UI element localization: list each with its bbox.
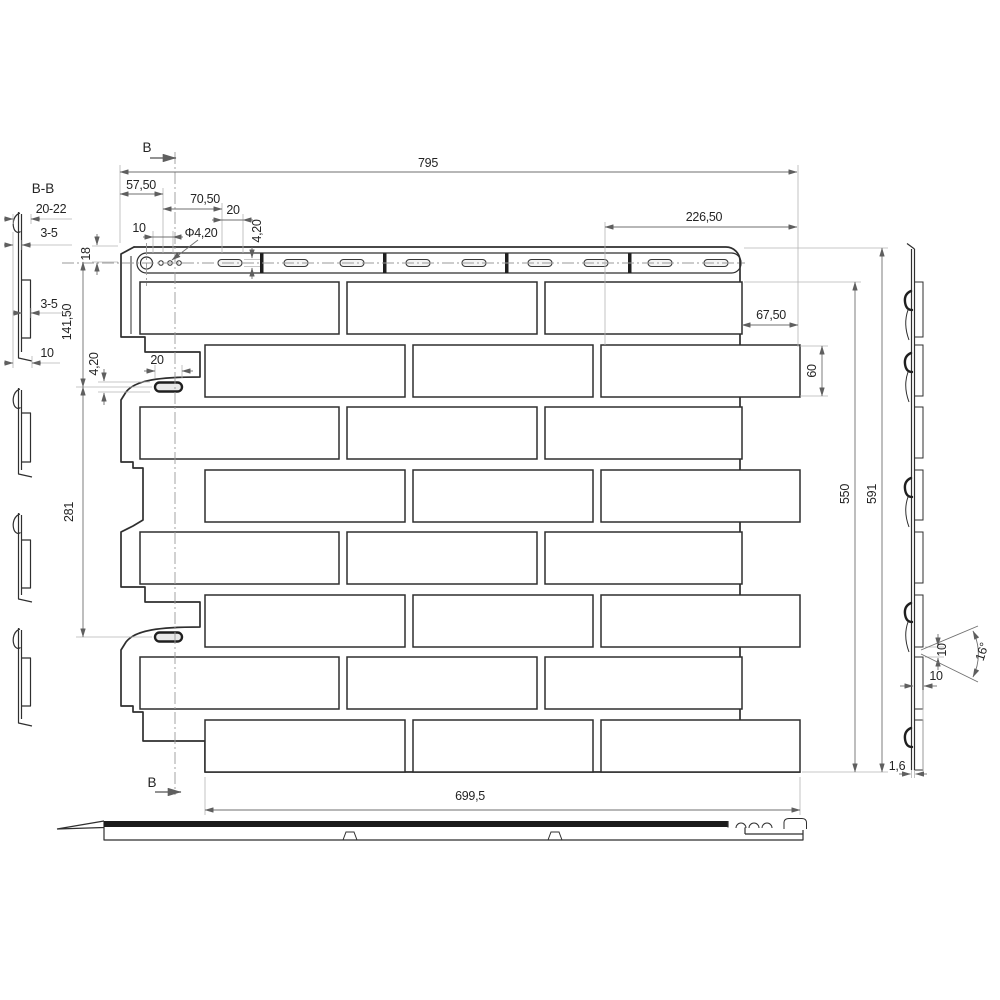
brick — [413, 595, 593, 647]
brick — [140, 407, 339, 459]
brick — [601, 720, 800, 772]
brick — [413, 470, 593, 522]
brick — [545, 657, 742, 709]
dim-right-overhang: 67,50 — [756, 308, 786, 322]
dim-bottom-width: 699,5 — [455, 789, 485, 803]
left-oval-slot — [155, 383, 182, 392]
brick — [205, 720, 405, 772]
dim-total-height: 591 — [865, 484, 879, 504]
brick — [205, 470, 405, 522]
section-profile — [13, 628, 32, 726]
dim-slot-gap-top: 20 — [226, 203, 240, 217]
dim-left-slot-height: 4,20 — [87, 352, 101, 375]
brick — [545, 282, 742, 334]
section-view-bb: B-B 20-22 3-5 — [4, 181, 72, 726]
brick — [140, 532, 339, 584]
dim-section-base: 10 — [40, 346, 54, 360]
technical-drawing-canvas: 795 57,50 70,50 20 10 Φ4,20 4,20 226,50 … — [0, 0, 1000, 1000]
bottom-notch — [548, 832, 562, 840]
section-profile — [13, 513, 32, 602]
brick — [347, 282, 537, 334]
dim-brick-field-height: 550 — [838, 484, 852, 504]
brick — [601, 470, 800, 522]
dim-bump-gap: 10 — [935, 643, 949, 657]
dim-section-hook: 3-5 — [40, 226, 58, 240]
side-view: 10 16° 10 1,6 — [889, 244, 992, 779]
side-sheet — [907, 244, 915, 771]
brick — [413, 720, 593, 772]
side-bumps — [915, 282, 924, 770]
cut-mark-bottom: B — [147, 775, 156, 790]
bottom-face-band — [104, 821, 728, 827]
brick — [545, 407, 742, 459]
dim-first-slot-drop: 141,50 — [60, 303, 74, 340]
cut-mark-top: B — [142, 140, 151, 155]
brick — [545, 532, 742, 584]
bottom-left-tip — [57, 821, 104, 829]
dim-section-depth-total: 20-22 — [36, 202, 67, 216]
dim-overall-width: 795 — [418, 156, 438, 170]
dim-slot-height-top: 4,20 — [250, 219, 264, 242]
brick — [601, 595, 800, 647]
brick — [140, 282, 339, 334]
dim-brick-height: 60 — [805, 364, 819, 378]
brick-rows — [140, 282, 800, 772]
bottom-view — [57, 819, 807, 841]
dim-left-slot-width: 20 — [150, 353, 164, 367]
dim-bump-depth: 10 — [929, 669, 943, 683]
brick — [413, 345, 593, 397]
dim-hem-offset: 70,50 — [190, 192, 220, 206]
facade-panel-drawing: 795 57,50 70,50 20 10 Φ4,20 4,20 226,50 … — [0, 0, 1000, 1000]
brick — [205, 595, 405, 647]
dim-hem-height: 18 — [79, 247, 93, 261]
brick — [347, 407, 537, 459]
section-profile — [13, 212, 32, 361]
dim-right-span: 226,50 — [686, 210, 723, 224]
brick — [205, 345, 405, 397]
left-oval-slot — [155, 633, 182, 642]
bottom-notch — [343, 832, 357, 840]
brick — [601, 345, 800, 397]
dim-left-trim: 57,50 — [126, 178, 156, 192]
dim-slot-pitch: 281 — [62, 502, 76, 522]
bottom-right-clips — [736, 819, 807, 830]
dimensions-section: 20-22 3-5 3-5 10 — [4, 202, 72, 368]
section-profile — [13, 388, 32, 477]
dimensions-side: 10 16° 10 1,6 — [889, 626, 992, 778]
dim-hole-margin-top: 10 — [132, 221, 146, 235]
dim-hole-diameter: Φ4,20 — [185, 226, 218, 240]
brick — [140, 657, 339, 709]
brick — [347, 657, 537, 709]
dim-sheet-thickness: 1,6 — [889, 759, 906, 773]
dim-bump-angle: 16° — [973, 641, 992, 663]
section-title: B-B — [32, 181, 55, 196]
dim-section-bump: 3-5 — [40, 297, 58, 311]
brick — [347, 532, 537, 584]
